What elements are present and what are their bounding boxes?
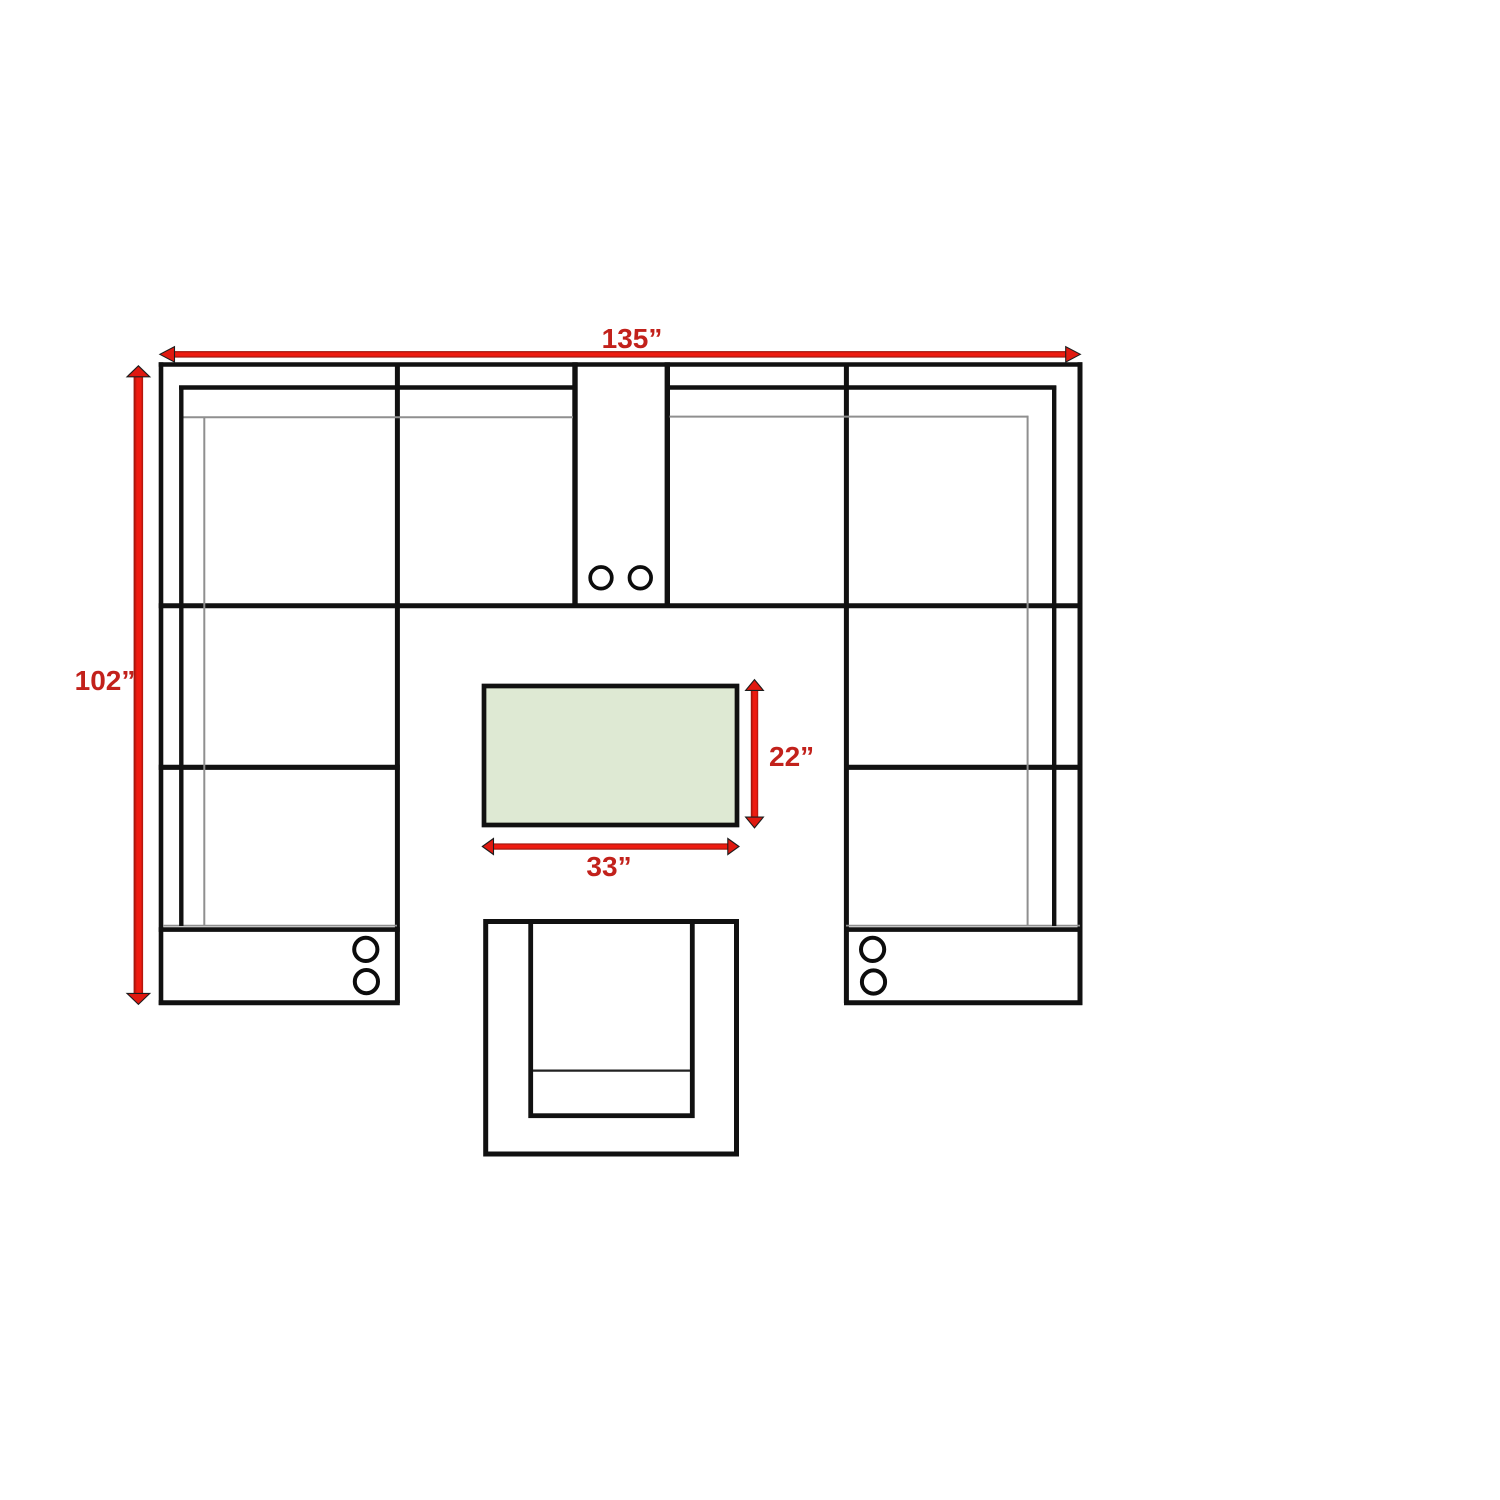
svg-text:22”: 22” — [769, 741, 814, 772]
svg-text:33”: 33” — [586, 851, 631, 882]
svg-text:102”: 102” — [75, 665, 136, 696]
svg-text:135”: 135” — [602, 323, 663, 354]
